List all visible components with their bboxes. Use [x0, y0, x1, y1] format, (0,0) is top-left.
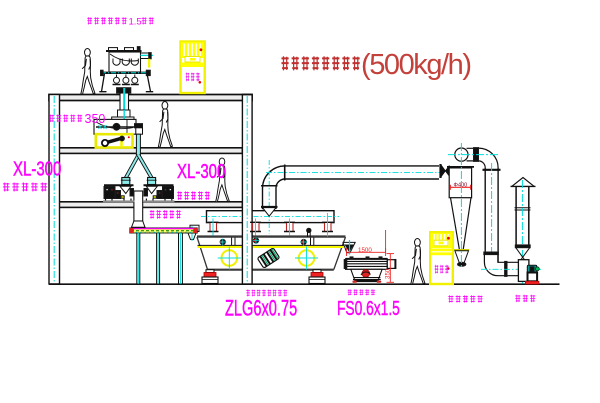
svg-text:FS0.6x1.5: FS0.6x1.5 [337, 296, 400, 320]
svg-text:Φ400: Φ400 [454, 183, 468, 189]
svg-text:1500: 1500 [358, 247, 372, 254]
svg-text:XL-300: XL-300 [13, 157, 61, 180]
svg-text:XL-300: XL-300 [177, 160, 225, 183]
svg-text:ZLG6x0.75: ZLG6x0.75 [225, 295, 297, 320]
svg-text:350: 350 [85, 112, 106, 126]
svg-text:(500kg/h): (500kg/h) [361, 49, 472, 81]
svg-text:1.5: 1.5 [129, 17, 142, 28]
svg-text:350: 350 [384, 268, 391, 279]
